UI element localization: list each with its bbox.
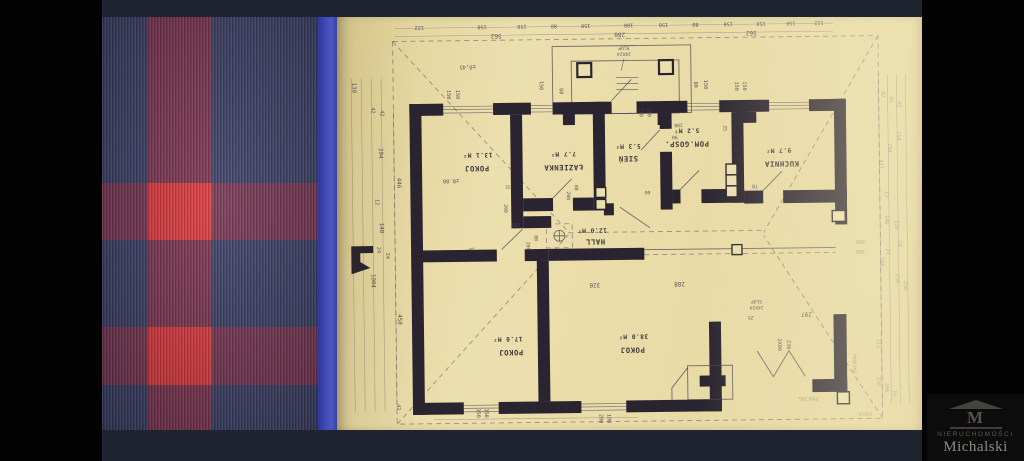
room-name-label: POKOJ bbox=[464, 164, 489, 173]
light-point-symbol bbox=[554, 230, 565, 241]
dimension-label: 250 bbox=[895, 131, 901, 140]
dimension-label: 200 bbox=[502, 204, 508, 213]
fabric-horizontal-band bbox=[102, 327, 318, 385]
floor-plan-drawing: 1221501508015010015080150150150122562280… bbox=[337, 17, 922, 430]
dimension-label: 230 bbox=[638, 108, 644, 117]
dimension-label: 100 bbox=[646, 107, 652, 116]
dimension-label: 130 bbox=[350, 83, 356, 94]
dimension-label: 122 bbox=[415, 24, 424, 30]
dimension-label: 60 bbox=[645, 189, 651, 195]
fabric-red-square bbox=[148, 327, 212, 385]
dimension-label: 150 bbox=[517, 23, 526, 29]
dimension-label: 150 bbox=[475, 409, 481, 418]
dimension-label: 212 bbox=[875, 339, 881, 348]
floor-plan-paper: 1221501508015010015080150150150122562280… bbox=[337, 17, 922, 430]
dimension-label: 297 bbox=[801, 310, 812, 317]
dimension-label: 294 bbox=[886, 143, 892, 152]
agency-type-label: NIERUCHOMOŚCI bbox=[937, 431, 1014, 438]
dimension-label: 80 bbox=[532, 235, 538, 241]
dimension-label: 42 bbox=[888, 96, 894, 102]
dimension-label: 150 bbox=[477, 23, 486, 29]
dimension-label: 42 bbox=[369, 107, 375, 113]
dimension-label: 158 bbox=[875, 377, 881, 386]
fabric-red-square bbox=[148, 183, 212, 240]
dimension-label: 120 bbox=[893, 220, 899, 229]
dimension-label: 2X90 bbox=[776, 338, 782, 351]
dimension-label: 32 bbox=[505, 184, 511, 190]
dimension-label: 80 bbox=[692, 21, 698, 27]
chimney-flue bbox=[700, 375, 711, 386]
dimension-label: 25 bbox=[721, 125, 727, 131]
section-marker bbox=[351, 246, 373, 274]
fabric-horizontal-band bbox=[102, 183, 318, 240]
dimension-label: 80 bbox=[692, 82, 698, 88]
dimension-label: 80 bbox=[551, 23, 557, 29]
dimension-label: 70 bbox=[752, 183, 758, 189]
dimension-label: 150 bbox=[756, 20, 765, 26]
dimension-label: 150 bbox=[724, 20, 733, 26]
dimension-label: 200 bbox=[856, 238, 865, 244]
dimension-label: 24 bbox=[896, 240, 902, 246]
dimension-label: 24X24 bbox=[858, 410, 872, 416]
chimney-flue bbox=[715, 375, 726, 386]
dimension-label: 24X24 bbox=[749, 304, 763, 310]
porch-column bbox=[577, 63, 591, 77]
dimension-label: 150 bbox=[786, 20, 795, 26]
dimension-label: 150 bbox=[702, 80, 708, 89]
room-name-label: POKOJ bbox=[620, 345, 645, 354]
dimension-label: 150 bbox=[483, 408, 489, 417]
dimension-label: 150 bbox=[454, 90, 460, 99]
dimension-label: 140 bbox=[883, 215, 889, 224]
agency-logo-letter: M bbox=[967, 410, 984, 425]
photo-viewer-frame: 1221501508015010015080150150150122562280… bbox=[0, 0, 1024, 461]
dimension-label: 42 bbox=[896, 101, 902, 107]
dimension-label: 230 bbox=[785, 340, 791, 349]
double-door-zigzag bbox=[757, 350, 805, 376]
room-area-label: 7.7 M² bbox=[551, 150, 576, 157]
photo-content: 1221501508015010015080150150150122562280… bbox=[102, 17, 922, 430]
binder-edge bbox=[318, 17, 337, 430]
dimension-label: 122 bbox=[814, 19, 823, 25]
dimension-label: 60 bbox=[558, 88, 564, 94]
dimension-label: 180 bbox=[856, 248, 865, 254]
dimension-label: 288 bbox=[674, 280, 685, 287]
logo-divider bbox=[950, 427, 1002, 429]
dimension-label: 10 bbox=[469, 246, 475, 252]
dimension-label: 150 bbox=[741, 81, 747, 90]
dimension-label: 42 bbox=[880, 91, 886, 97]
dimension-label: 200 bbox=[512, 221, 521, 227]
dimension-label: 140 bbox=[378, 223, 384, 234]
room-area-label: 17.0 M² bbox=[493, 335, 523, 342]
dimension-label: 200 bbox=[565, 192, 571, 201]
dimension-label: 100 bbox=[879, 257, 885, 266]
dimension-lines bbox=[351, 22, 910, 420]
dimension-label: 180 bbox=[605, 414, 611, 423]
dimension-label: ±0.00 bbox=[443, 177, 460, 183]
room-area-label: 38.0 M² bbox=[619, 332, 649, 339]
dimension-label: 24 bbox=[891, 390, 897, 396]
dimension-label: 280 bbox=[614, 31, 625, 38]
dimension-label: 25 bbox=[748, 314, 754, 320]
room-name-label: POKOJ bbox=[499, 348, 524, 357]
room-name-label: SIEŃ bbox=[618, 154, 638, 163]
dimension-label: 150 bbox=[733, 81, 739, 90]
dimension-label: SLUP bbox=[618, 45, 629, 51]
roof-outline-dashed bbox=[393, 36, 883, 425]
dimension-label: 294 bbox=[377, 148, 383, 159]
room-name-label: KUCHNIA bbox=[764, 159, 799, 168]
dimension-label: 450 bbox=[396, 314, 402, 325]
dimension-label: 446 bbox=[395, 178, 401, 189]
dimension-label: 150 bbox=[538, 81, 544, 90]
plan-labels: 1221501508015010015080150150150122562280… bbox=[350, 18, 910, 426]
room-area-label: 5.2 M² bbox=[674, 126, 699, 133]
listing-photo: 1221501508015010015080150150150122562280… bbox=[102, 0, 922, 461]
dimension-label: 250 bbox=[902, 281, 908, 290]
dimension-label: 80 bbox=[573, 185, 579, 191]
room-name-label: POM.GOSP. bbox=[665, 139, 709, 149]
fabric-vertical-band bbox=[148, 17, 212, 430]
chimney bbox=[672, 365, 733, 400]
dimension-label: PODCIAG bbox=[851, 354, 857, 374]
room-area-label: 12.0 M² bbox=[577, 226, 607, 233]
agency-name-label: Michalski bbox=[943, 439, 1008, 456]
dimension-label: 150 bbox=[659, 21, 668, 27]
porch-column bbox=[659, 60, 673, 74]
dimension-label: 150 bbox=[581, 22, 590, 28]
dimension-label: 200 bbox=[883, 383, 889, 392]
room-name-label: ŁAZIENKA bbox=[544, 163, 585, 172]
dimension-label: 42 bbox=[378, 110, 384, 116]
dimension-label: 1004 bbox=[369, 274, 375, 288]
agency-watermark: M NIERUCHOMOŚCI Michalski bbox=[927, 394, 1024, 461]
room-area-label: 5.3 M² bbox=[615, 142, 640, 149]
dimension-label: 320 bbox=[589, 281, 600, 288]
dimension-label: 24X24 bbox=[617, 51, 631, 57]
dimension-label: 42 bbox=[395, 404, 401, 410]
dimension-label: 24 bbox=[384, 253, 390, 259]
dimension-label: 200 bbox=[597, 414, 603, 423]
dimension-label: PODCIAG bbox=[799, 395, 819, 401]
dimension-label: 12 bbox=[374, 199, 380, 205]
room-area-label: 9.7 M² bbox=[766, 146, 791, 153]
dimension-label: 24 bbox=[375, 247, 381, 253]
dimension-label: 412 bbox=[877, 159, 883, 168]
dimension-label: 200 bbox=[525, 242, 531, 251]
dimension-label: 250 bbox=[894, 274, 900, 283]
dimension-label: 100 bbox=[624, 22, 633, 28]
dimension-label: SLUP bbox=[751, 298, 762, 304]
room-name-label: HALL bbox=[585, 237, 605, 246]
dimension-label: 150 bbox=[445, 90, 451, 99]
dimension-label: ±0,45 bbox=[459, 63, 476, 69]
dimension-label: 12 bbox=[883, 191, 889, 197]
dimension-label: 562 bbox=[490, 32, 501, 39]
room-area-label: 13.1 M² bbox=[463, 151, 493, 158]
plaid-fabric-background bbox=[102, 17, 318, 430]
dimension-label: 562 bbox=[745, 29, 756, 36]
dimension-label: 24 bbox=[884, 249, 890, 255]
